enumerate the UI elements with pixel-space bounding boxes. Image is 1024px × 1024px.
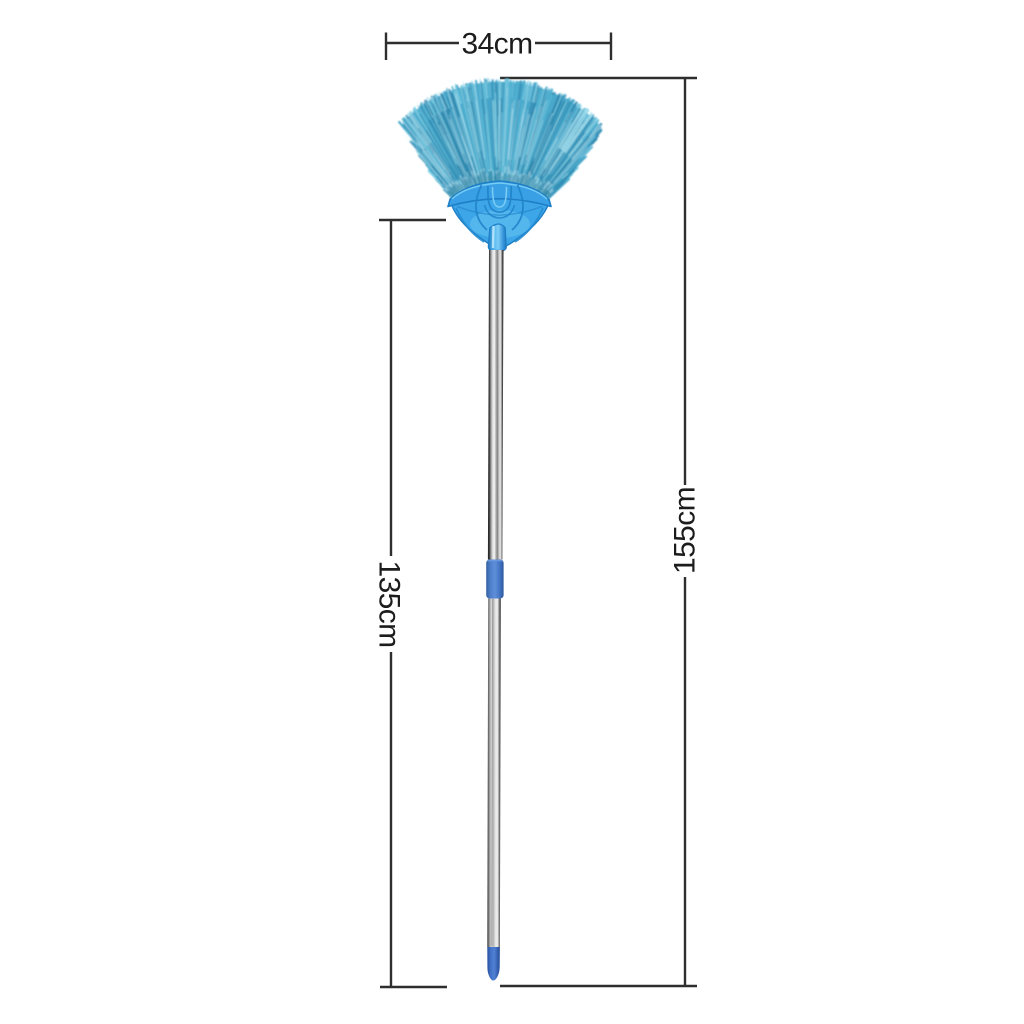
svg-text:34cm: 34cm [462,28,533,61]
svg-text:135cm: 135cm [373,560,406,647]
svg-text:155cm: 155cm [669,487,702,574]
